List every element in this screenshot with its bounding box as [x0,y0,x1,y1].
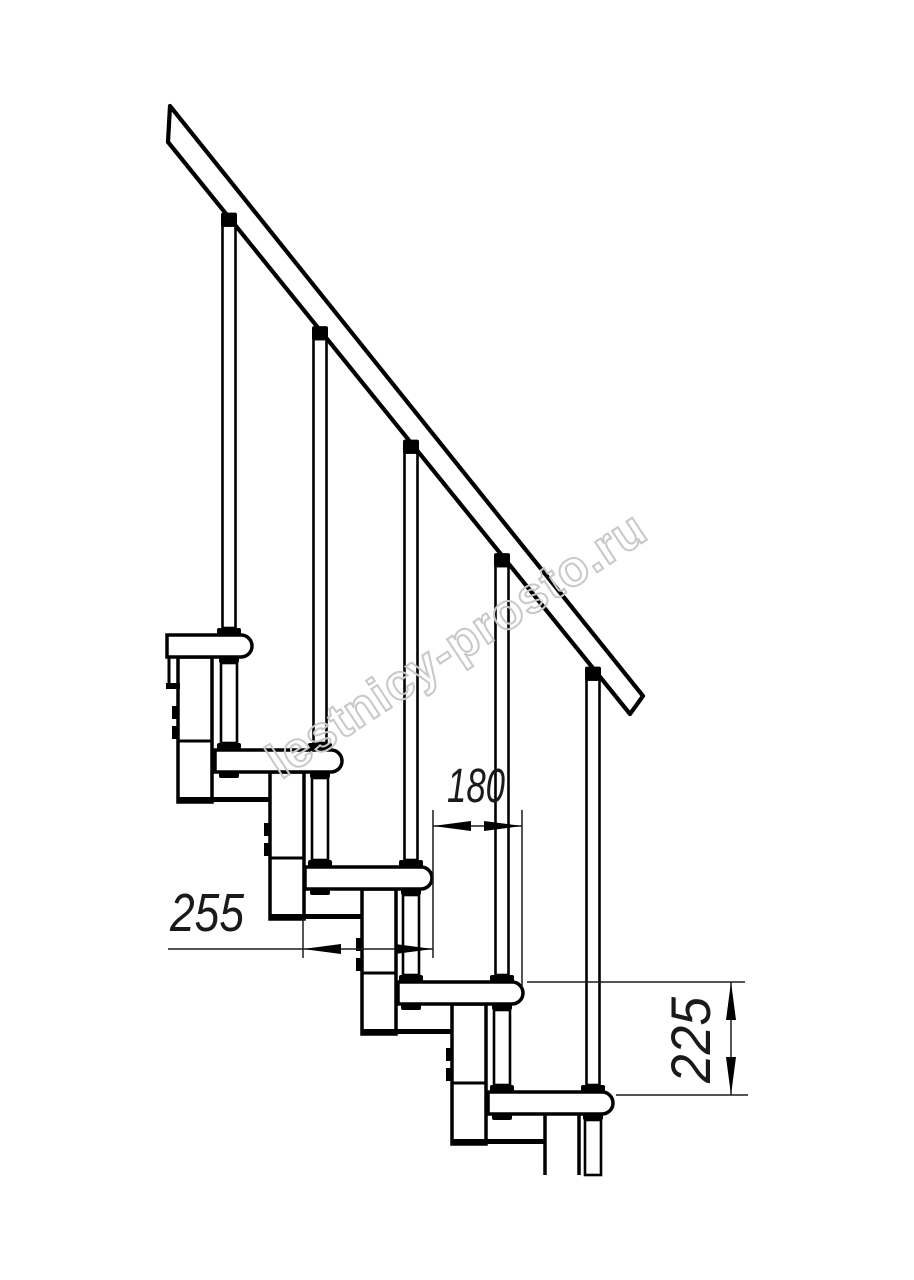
dim-label-225: 225 [659,996,722,1084]
dim-arrow [726,982,736,1020]
dim-label-255: 255 [169,883,245,943]
mount-tab [172,706,179,719]
mount-tab [264,823,271,836]
bolt-nut [219,657,239,663]
baluster [587,680,600,1085]
support-module [178,657,212,802]
bolt-nut [310,889,330,895]
base-plate [270,914,362,919]
tread [305,867,432,889]
bolt-nut [401,1004,421,1010]
dim-arrow [433,821,471,831]
baluster [223,226,236,628]
support-module [270,772,304,919]
bolt-nut [492,1004,512,1010]
mount-tab [446,1068,453,1081]
bolt-nut [401,889,421,895]
baluster-rail-connector [403,440,419,454]
bolt-nut [310,772,330,778]
dim-arrow [726,1057,736,1095]
base-plate [452,1139,545,1144]
rod-foot [308,860,332,867]
rod-foot [217,743,241,750]
bolt-nut [492,1114,512,1120]
support-rod [403,895,419,975]
base-plate [178,797,270,802]
baluster-rail-connector [494,553,510,567]
staircase-drawing: 180 255 225 lestnicy-prosto.ru [0,0,914,1280]
dim-arrow [303,944,341,954]
technical-drawing-canvas: 180 255 225 lestnicy-prosto.ru [0,0,914,1280]
support-rod [221,663,237,743]
rod-foot [490,1085,514,1092]
bolt-nut [583,1114,603,1120]
tread [488,1092,613,1114]
support-rod [312,778,328,860]
support-module [452,1004,486,1144]
baluster [314,339,327,743]
baluster-rail-connector [585,667,601,681]
baluster-rail-connector [221,213,237,227]
mount-tab [264,843,271,856]
dim-label-180: 180 [447,760,505,813]
rod-foot [399,975,423,982]
tread [398,982,523,1004]
support-rod [585,1120,601,1175]
support-module [362,889,396,1034]
baluster-rail-connector [312,326,328,340]
staircase-structure [166,106,643,1175]
mount-tab [446,1048,453,1061]
support-rod [494,1010,510,1085]
tread [167,635,252,657]
mount-tab [166,683,180,689]
base-plate [362,1029,452,1034]
mount-tab [172,726,179,739]
bolt-nut [219,772,239,778]
mount-tab [356,958,363,971]
